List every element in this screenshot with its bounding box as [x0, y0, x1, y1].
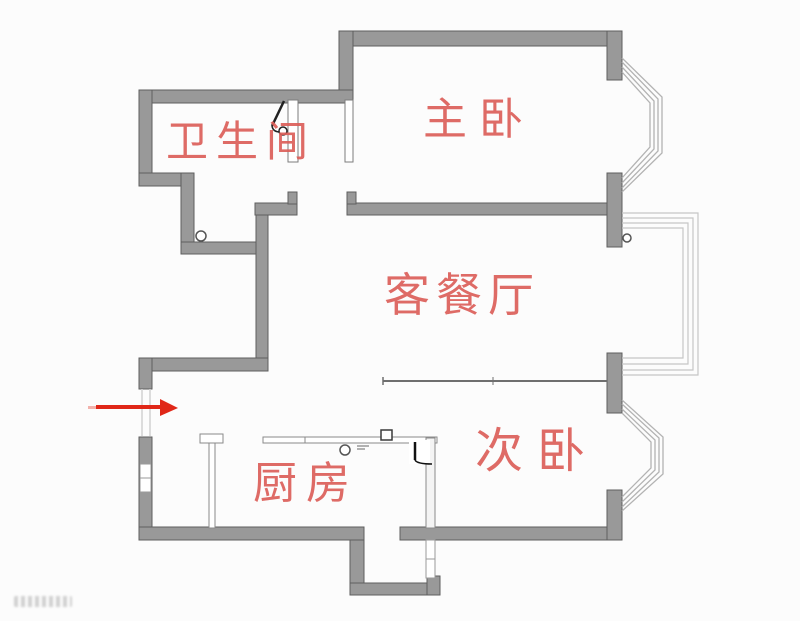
room-label-bathroom: 卫生间: [166, 121, 316, 163]
kitchen-left-window-icon: [140, 464, 151, 492]
room-label-second-bedroom: 次卧: [475, 427, 599, 475]
watermark: [14, 596, 72, 607]
floor-plan: 卫生间 主卧 客餐厅 次卧 厨房: [0, 0, 800, 621]
balcony-window-living-room-icon: [622, 213, 698, 375]
bay-window-second-bedroom-icon: [622, 400, 663, 511]
entrance-arrow-icon: [88, 399, 178, 416]
room-label-kitchen: 厨房: [253, 462, 359, 506]
stove-mark-icon: [357, 446, 369, 449]
kitchen-door-icon: [409, 440, 432, 464]
partition-living-second-bedroom: [383, 377, 607, 385]
room-label-living-dining: 客餐厅: [384, 272, 540, 318]
entrance-opening: [142, 389, 150, 436]
bay-window-master-bedroom-icon: [622, 58, 662, 192]
entry-partition: [200, 434, 223, 528]
bump-window-icon: [426, 540, 435, 578]
room-label-master-bedroom: 主卧: [423, 98, 535, 142]
